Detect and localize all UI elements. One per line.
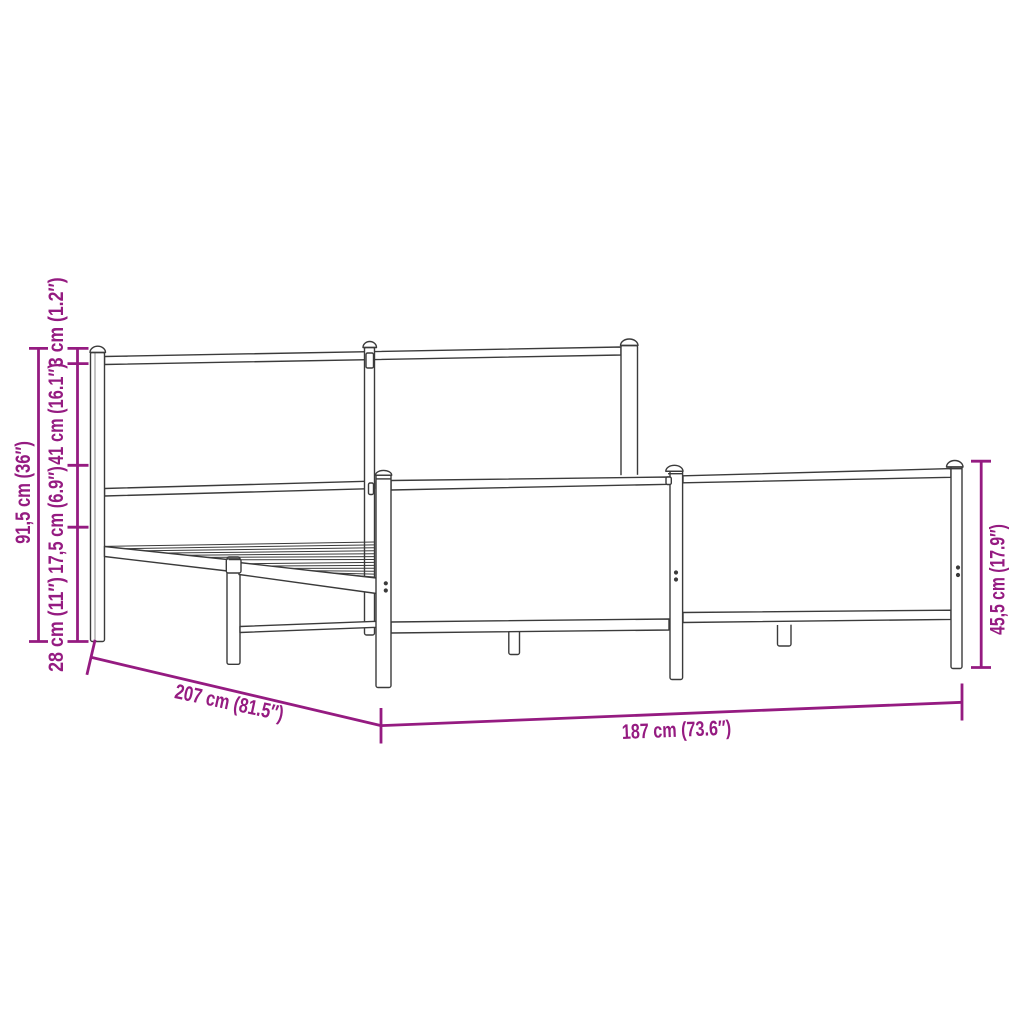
svg-text:91,5 cm (36″): 91,5 cm (36″) <box>12 441 35 544</box>
svg-text:45,5 cm (17.9″): 45,5 cm (17.9″) <box>985 524 1009 635</box>
svg-text:41 cm (16.1″): 41 cm (16.1″) <box>44 363 67 465</box>
svg-text:187 cm (73.6″): 187 cm (73.6″) <box>621 716 731 744</box>
svg-text:17,5 cm (6.9″): 17,5 cm (6.9″) <box>45 466 68 573</box>
svg-text:28 cm (11″): 28 cm (11″) <box>45 577 69 672</box>
svg-text:3 cm (1.2″): 3 cm (1.2″) <box>45 277 69 367</box>
svg-text:207 cm (81.5″): 207 cm (81.5″) <box>173 679 286 725</box>
